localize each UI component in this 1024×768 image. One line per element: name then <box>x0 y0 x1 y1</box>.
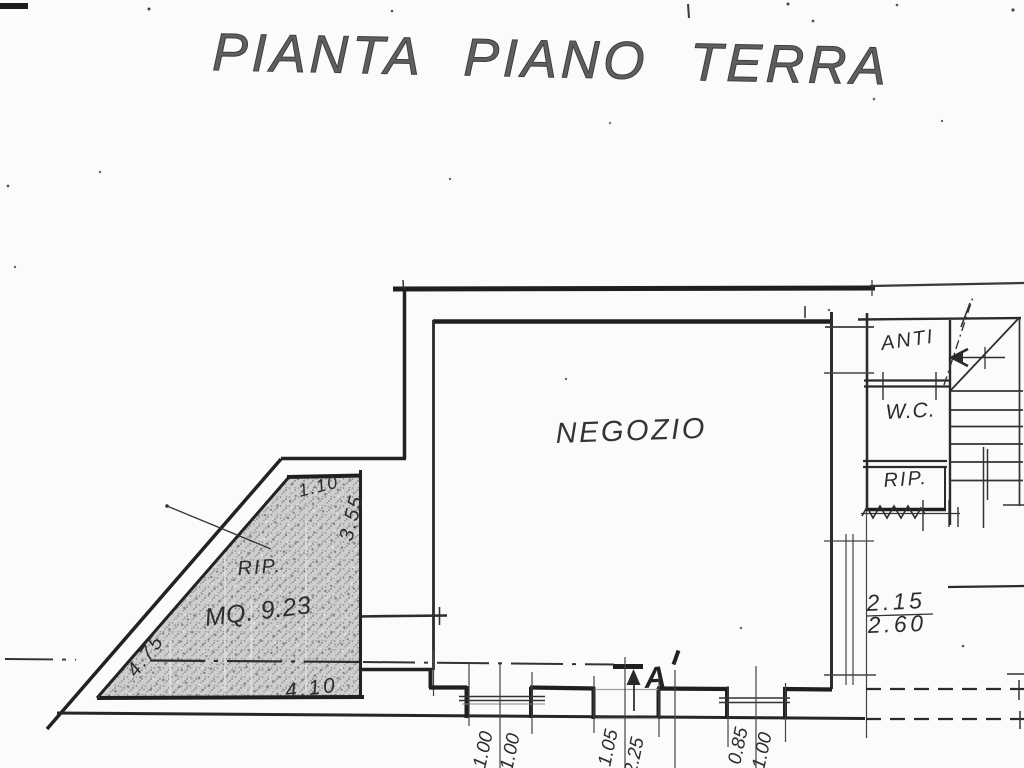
svg-text:RIP.: RIP. <box>883 467 929 492</box>
svg-text:W.C.: W.C. <box>885 398 936 424</box>
svg-text:NEGOZIO: NEGOZIO <box>555 413 707 450</box>
svg-text:RIP.: RIP. <box>237 555 283 580</box>
svg-text:A: A <box>643 661 667 695</box>
svg-text:2.60: 2.60 <box>866 610 927 638</box>
